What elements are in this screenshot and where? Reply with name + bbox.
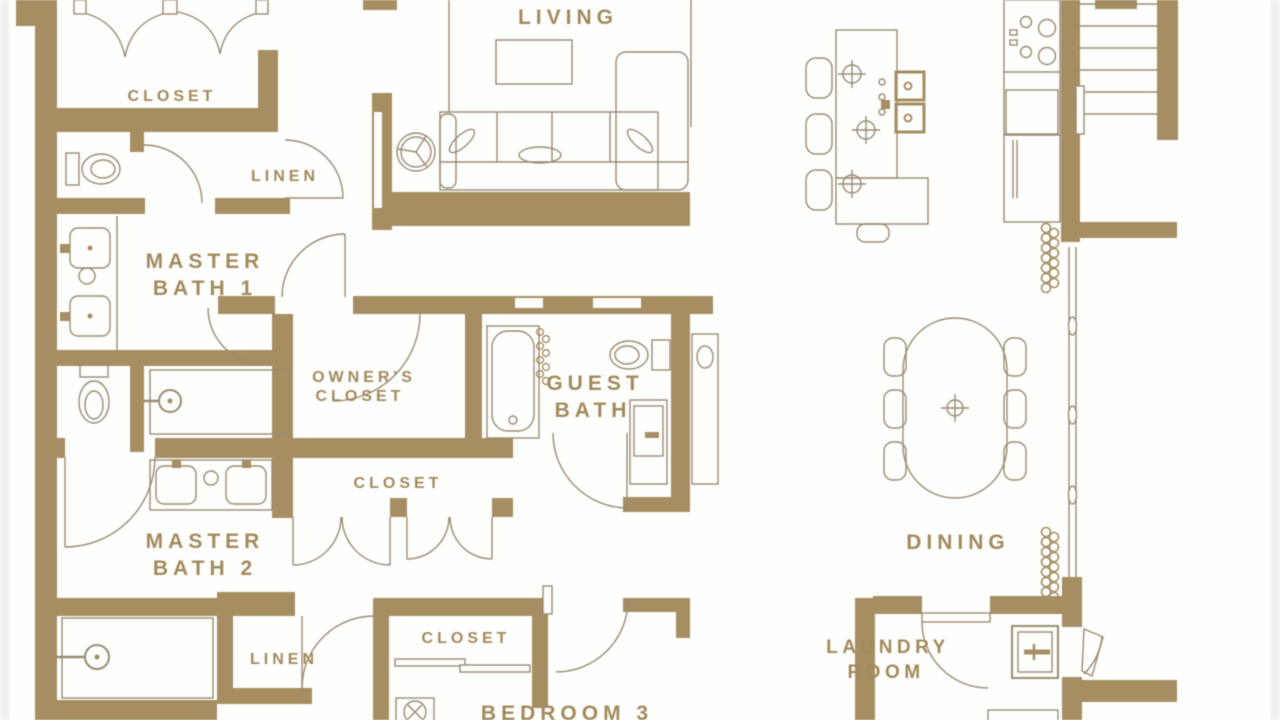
- faucet-icon: [645, 432, 659, 438]
- door-leaf: [922, 613, 990, 622]
- window-mullion: [1069, 406, 1077, 424]
- window-guest-bath-2: [593, 298, 641, 308]
- label-laundry-line2: ROOM: [847, 662, 924, 683]
- window-living-west: [374, 112, 382, 208]
- sink-icon: [226, 466, 266, 504]
- faucet-icon: [172, 460, 181, 468]
- pendant-light-icon: [852, 116, 880, 144]
- label-master-bath-1-line1: MASTER: [146, 250, 265, 273]
- window-wall-east: [1069, 247, 1077, 577]
- pillow: [446, 126, 478, 156]
- label-owners-closet-line1: OWNER'S: [312, 369, 416, 386]
- pendant-light-icon: [838, 60, 866, 88]
- double-vanity: [60, 216, 117, 350]
- round-side-table: [397, 133, 435, 171]
- dining-room: [884, 318, 1026, 498]
- faucet-icon: [60, 244, 70, 253]
- pendant-light-icon: [838, 170, 866, 198]
- door-jamb: [163, 0, 177, 14]
- label-master-bath-2-line1: MASTER: [146, 530, 265, 553]
- faucet-icon: [60, 312, 70, 321]
- label-master-bath-2-line2: BATH 2: [153, 557, 257, 580]
- right-edge-band: [1271, 0, 1280, 720]
- sectional-sofa: [440, 52, 688, 190]
- door-leaf: [1082, 629, 1103, 676]
- stair-handrail: [1076, 86, 1084, 134]
- door-arc: [293, 517, 341, 565]
- bar-stool: [857, 224, 889, 242]
- door-jamb: [74, 0, 86, 14]
- faucet-icon: [242, 460, 251, 468]
- curtain-coil-upper: [1042, 224, 1059, 293]
- label-guest-bath-line1: GUEST: [546, 372, 643, 395]
- laundry-room: [988, 626, 1058, 720]
- washer: [988, 710, 1058, 720]
- label-bedroom-3: BEDROOM 3: [481, 702, 653, 720]
- vanity: [630, 400, 667, 484]
- utility-sink: [1012, 626, 1058, 678]
- label-closet-master1: CLOSET: [128, 88, 217, 105]
- cooktop-icon: [1010, 17, 1056, 65]
- double-vanity: [150, 460, 272, 510]
- kitchen-counter-east: [1004, 0, 1060, 222]
- oven: [1006, 90, 1058, 134]
- staircase: [1076, 4, 1157, 134]
- toilet-icon: [610, 340, 670, 370]
- sliding-closet-door: [395, 659, 530, 672]
- bathtub-icon: [487, 326, 539, 438]
- curtain-coil-lower: [1042, 528, 1059, 607]
- label-closet-bedroom3: CLOSET: [422, 630, 511, 647]
- shower: [57, 618, 213, 698]
- doors: [65, 0, 1103, 688]
- kitchen-island: [806, 30, 928, 242]
- label-linen-lower: LINEN: [250, 651, 318, 668]
- door-leaf: [543, 586, 552, 614]
- coffee-table: [496, 40, 572, 84]
- door-arc: [144, 145, 202, 203]
- window-mullion: [1069, 486, 1077, 504]
- label-guest-bath-line2: BATH: [555, 399, 632, 422]
- bar-stool: [806, 170, 832, 210]
- label-master-bath-1-line2: BATH 1: [153, 277, 257, 300]
- ottoman: [519, 147, 561, 163]
- bar-stool: [806, 58, 832, 98]
- door-arc: [556, 600, 628, 672]
- ceiling-light-icon: [941, 394, 969, 422]
- door-jamb: [256, 0, 268, 14]
- left-edge-band: [0, 0, 9, 720]
- faucet-icon: [881, 100, 890, 109]
- label-laundry-line1: LAUNDRY: [826, 637, 950, 658]
- door-arc: [407, 517, 449, 559]
- kitchen-sink: [879, 72, 924, 132]
- window-mullion: [1069, 317, 1077, 335]
- floor-plan-image: LIVING CLOSET LINEN MASTER BATH 1 OWNER'…: [0, 0, 1280, 720]
- door-arc: [450, 517, 492, 559]
- toilet-icon: [79, 364, 109, 423]
- closet-door-arc: [178, 12, 220, 54]
- door-arc: [65, 457, 155, 547]
- window-guest-bath-1: [515, 298, 543, 308]
- pocket-door: [692, 334, 718, 484]
- sink-icon: [156, 466, 196, 504]
- label-closet-hall: CLOSET: [354, 475, 443, 492]
- label-owners-closet-line2: CLOSET: [316, 388, 405, 405]
- closet-door-arc: [80, 12, 125, 57]
- door-arc: [342, 517, 390, 565]
- label-living: LIVING: [518, 6, 618, 29]
- door-arc: [553, 433, 627, 508]
- pillow: [624, 126, 656, 156]
- kitchen: [806, 0, 1060, 242]
- toilet-icon: [66, 153, 120, 185]
- closet-door-arc: [220, 12, 262, 54]
- shower: [144, 370, 290, 434]
- door-arc: [282, 234, 345, 297]
- label-linen-upper: LINEN: [251, 168, 319, 185]
- closet-door-arc: [125, 12, 170, 57]
- floor-plan-page: LIVING CLOSET LINEN MASTER BATH 1 OWNER'…: [0, 0, 1280, 720]
- label-dining: DINING: [906, 531, 1010, 554]
- floor-outlet-icon: [396, 698, 434, 720]
- bar-stool: [806, 114, 832, 154]
